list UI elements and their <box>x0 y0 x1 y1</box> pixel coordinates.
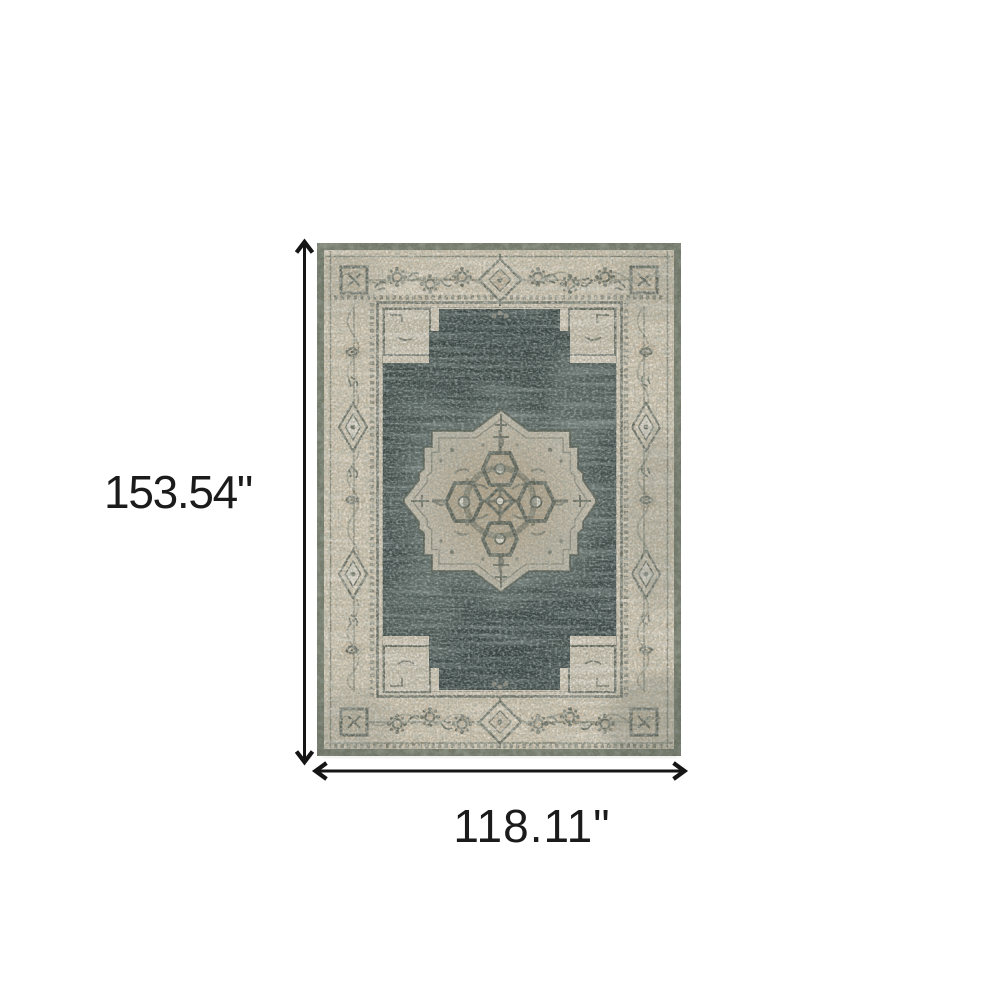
svg-text:118.11": 118.11" <box>453 800 610 852</box>
svg-text:153.54": 153.54" <box>104 466 252 518</box>
